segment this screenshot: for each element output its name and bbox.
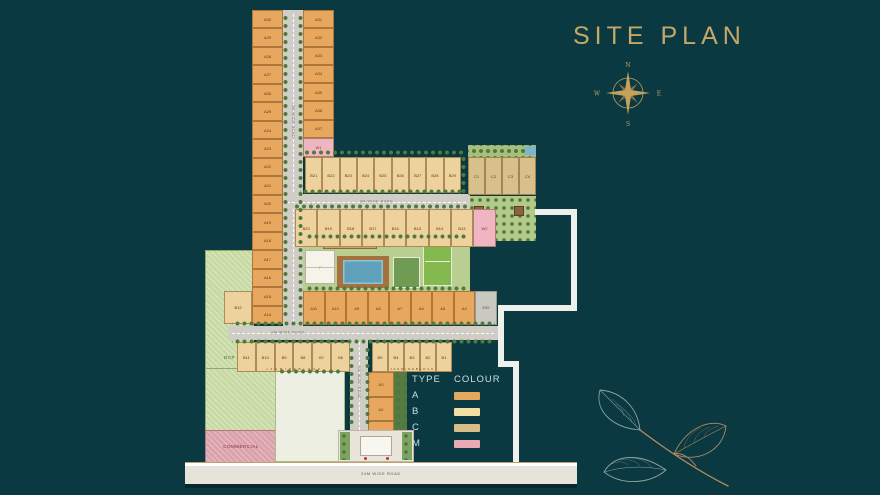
legend-swatch-m: [454, 440, 480, 448]
road-label: 9M WIDE ROAD: [291, 105, 295, 138]
plot-a31: A31: [303, 10, 334, 28]
main-road-label: 24M WIDE ROAD: [185, 470, 577, 475]
plot-row-b-mid: B20B19B18B17B16B15B14B13: [295, 209, 473, 247]
plot-c4: C4: [519, 157, 536, 195]
road-label: 9M WIDE ROAD: [357, 366, 361, 399]
road-label: 9M WIDE ROAD: [283, 199, 470, 203]
plot-c2: C2: [485, 157, 502, 195]
tree-line: [232, 338, 495, 345]
plot-a17: A17: [252, 250, 283, 268]
boundary-line: [498, 305, 577, 311]
tree-line: [300, 188, 465, 195]
boundary-line: [571, 209, 577, 311]
legend-colour-header: COLOUR: [454, 374, 501, 385]
plot-a27: A27: [252, 65, 283, 83]
clubhouse-building: P: [305, 250, 335, 284]
plot-a34: A34: [303, 65, 334, 83]
plot-b17: B17: [362, 209, 384, 247]
road-label: 9M WIDE ROAD: [228, 331, 348, 335]
tree-line: [364, 346, 370, 428]
plot-a3: A3: [368, 372, 394, 397]
plot-row-b-bottom-right: J A S M I N E B L O C K B5B4B3B2B1: [372, 342, 452, 372]
compass-south: S: [626, 121, 630, 128]
plot-a2: A2: [368, 397, 394, 422]
page-title: SITE PLAN: [573, 22, 746, 51]
site-plan-canvas: DCP COMMERCIAL 9M WIDE ROAD 9M WIDE ROAD…: [0, 0, 880, 495]
plot-b16: B16: [384, 209, 406, 247]
decorative-leaves: [578, 382, 738, 494]
entrance-gate: [360, 436, 392, 456]
legend-row: C: [412, 422, 501, 433]
plot-a37: A37: [303, 120, 334, 138]
commercial-label: COMMERCIAL: [206, 444, 276, 449]
plot-a19: A19: [252, 213, 283, 231]
plot-b14: B14: [429, 209, 451, 247]
plot-a30: A30: [252, 10, 283, 28]
open-plot-area: [275, 368, 345, 462]
legend-type-m: M: [412, 438, 454, 449]
tree-line: [232, 320, 495, 327]
plot-a23: A23: [252, 139, 283, 157]
block-name-letters: J A S M I N E B L O C K: [372, 367, 452, 371]
plot-w2: W2: [473, 209, 496, 247]
legend-swatch-a: [454, 392, 480, 400]
plot-b13: B13: [451, 209, 473, 247]
plot-a36: A36: [303, 101, 334, 119]
main-road: 24M WIDE ROAD: [185, 462, 577, 488]
water-feature: [525, 146, 536, 155]
plot-a25: A25: [252, 102, 283, 120]
plot-a21: A21: [252, 176, 283, 194]
boundary-line: [498, 305, 504, 367]
tree-line: [305, 149, 463, 156]
plot-a33: A33: [303, 47, 334, 65]
plot-b19: B19: [317, 209, 339, 247]
compass-rose: N E S W: [592, 57, 664, 129]
plot-a24: A24: [252, 121, 283, 139]
entrance-landscape: [402, 432, 412, 460]
plot-a16: A16: [252, 269, 283, 287]
plot-a22: A22: [252, 158, 283, 176]
legend-type-header: TYPE: [412, 374, 454, 385]
tree-line: [348, 346, 354, 428]
tree-line: [305, 285, 468, 292]
tree-line: [305, 233, 468, 240]
sports-court: [393, 257, 420, 288]
legend: TYPE COLOUR A B C M: [412, 374, 501, 454]
boundary-line: [513, 361, 519, 462]
dcp-green-area-lower: [205, 368, 277, 432]
compass-north: N: [625, 62, 630, 69]
plot-a29: A29: [252, 28, 283, 46]
legend-type-b: B: [412, 406, 454, 417]
gate-flag: [364, 457, 367, 460]
tree-line: [282, 14, 289, 320]
park-structure: [514, 206, 524, 216]
entrance-landscape: [340, 432, 350, 460]
tree-line: [277, 368, 343, 375]
plot-a18: A18: [252, 232, 283, 250]
legend-row: B: [412, 406, 501, 417]
plot-c1: C1: [468, 157, 485, 195]
plot-column-a-left: A30A29A28A27A26A25A24A23A22A21A20A19A18A…: [252, 10, 283, 324]
plot-row-c: C1C2C3C4: [468, 157, 536, 195]
swimming-pool: [343, 260, 383, 284]
gate-flag: [386, 457, 389, 460]
plot-a20: A20: [252, 195, 283, 213]
tree-line: [295, 203, 467, 210]
plot-a32: A32: [303, 28, 334, 46]
legend-type-c: C: [412, 422, 454, 433]
legend-swatch-b: [454, 408, 480, 416]
plot-c3: C3: [502, 157, 519, 195]
plot-a28: A28: [252, 47, 283, 65]
commercial-area: COMMERCIAL: [205, 430, 277, 465]
tree-line: [297, 14, 304, 320]
plot-b18: B18: [340, 209, 362, 247]
compass-west: W: [594, 91, 601, 98]
tree-line: [460, 155, 467, 195]
legend-row: A: [412, 390, 501, 401]
plot-a35: A35: [303, 83, 334, 101]
legend-row: M: [412, 438, 501, 449]
plot-a15: A15: [252, 287, 283, 305]
compass-east: E: [657, 91, 661, 98]
plot-a26: A26: [252, 84, 283, 102]
legend-swatch-c: [454, 424, 480, 432]
plot-column-a-right: A31A32A33A34A35A36A37: [303, 10, 334, 138]
legend-type-a: A: [412, 390, 454, 401]
plot-b15: B15: [406, 209, 428, 247]
